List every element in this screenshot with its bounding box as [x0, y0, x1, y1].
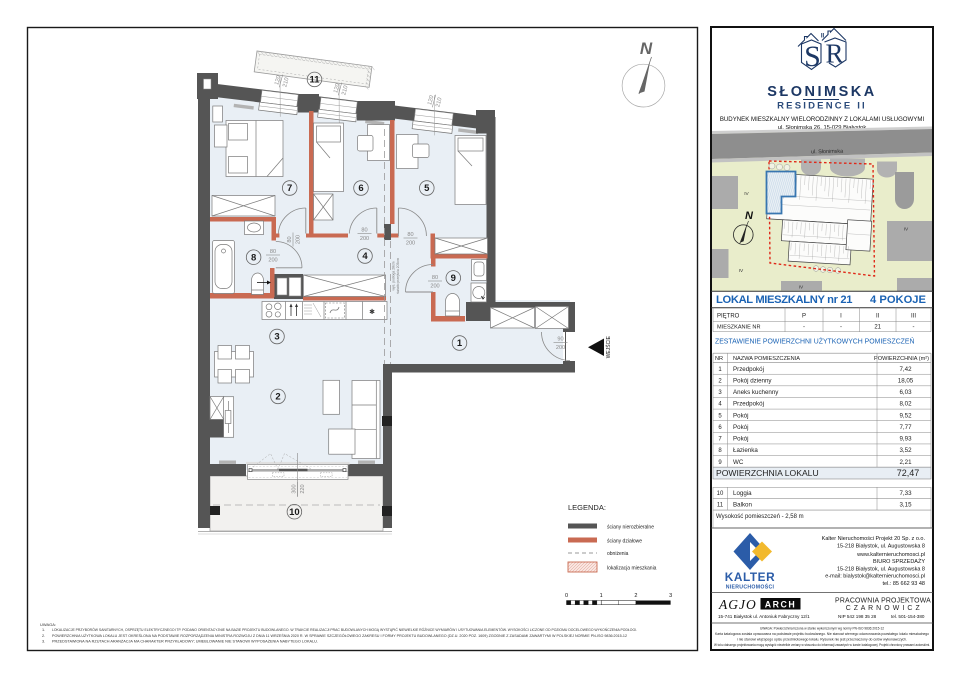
svg-text:18,05: 18,05 [898, 377, 914, 384]
svg-text:3: 3 [274, 332, 279, 343]
svg-text:-: - [913, 324, 915, 330]
svg-text:Loggia: Loggia [733, 490, 752, 497]
svg-text:SŁONIMSKA: SŁONIMSKA [767, 84, 877, 100]
svg-text:RESIDENCE II: RESIDENCE II [777, 101, 867, 112]
svg-text:3,52: 3,52 [899, 447, 912, 454]
svg-text:6: 6 [358, 183, 363, 194]
svg-text:1: 1 [457, 338, 463, 349]
svg-text:220: 220 [300, 484, 306, 493]
svg-text:ZESTAWIENIE POWIERZCHNI UŻYTKO: ZESTAWIENIE POWIERZCHNI UŻYTKOWYCH POMIE… [715, 337, 914, 346]
svg-text:Przedpokój: Przedpokój [733, 366, 764, 373]
svg-text:BIURO SPRZEDAŻY: BIURO SPRZEDAŻY [873, 558, 925, 565]
svg-text:IV: IV [739, 268, 744, 274]
svg-text:-: - [840, 324, 842, 330]
svg-text:9: 9 [451, 273, 456, 284]
svg-text:15-218 Białystok, ul. Augustow: 15-218 Białystok, ul. Augustowska 8 [837, 543, 925, 549]
svg-text:II: II [876, 314, 880, 320]
svg-text:UWAGA:: UWAGA: [40, 622, 56, 627]
svg-text:ściany działowe: ściany działowe [607, 539, 642, 545]
svg-text:W toku dalszego projektowania: W toku dalszego projektowania mogą wystą… [714, 643, 930, 647]
svg-text:80: 80 [287, 236, 293, 242]
svg-text:Pokój dzienny: Pokój dzienny [733, 377, 772, 384]
svg-text:3.: 3. [42, 640, 45, 644]
svg-text:i nie stanowi wiążącego opisu: i nie stanowi wiążącego opisu przedmioto… [737, 637, 907, 641]
svg-text:2: 2 [275, 392, 280, 403]
svg-text:Kalter Nieruchomości Projekt 2: Kalter Nieruchomości Projekt 20 Sp. z o.… [822, 536, 926, 542]
svg-text:LOKALIZACJE PRZYBORÓW SANITARN: LOKALIZACJE PRZYBORÓW SANITARNYCH, OSPRZ… [52, 627, 637, 632]
svg-text:wys. podłoga 28cm: wys. podłoga 28cm [392, 261, 396, 290]
svg-text:II: II [821, 34, 825, 40]
svg-text:LOKAL MIESZKALNY nr 21: LOKAL MIESZKALNY nr 21 [716, 294, 852, 306]
svg-text:-: - [803, 324, 805, 330]
svg-text:S: S [804, 40, 821, 73]
svg-text:Przedpokój: Przedpokój [733, 401, 764, 408]
svg-text:POWIERZCHNIA UŻYTKOWA LOKALU J: POWIERZCHNIA UŻYTKOWA LOKALU JEST OKREŚL… [52, 633, 627, 638]
svg-text:3,15: 3,15 [899, 502, 912, 509]
svg-text:1: 1 [600, 593, 603, 599]
svg-text:www.kalternieruchomosci.pl: www.kalternieruchomosci.pl [856, 552, 925, 558]
svg-text:✱: ✱ [369, 308, 375, 316]
svg-text:Pokój: Pokój [733, 424, 748, 431]
svg-text:10: 10 [289, 507, 300, 518]
svg-text:7,77: 7,77 [899, 424, 912, 431]
svg-text:80: 80 [407, 232, 413, 238]
svg-text:72,47: 72,47 [897, 468, 920, 478]
svg-text:PRZEDSTAWIONA NA RZUTACH ARANŻ: PRZEDSTAWIONA NA RZUTACH ARANŻACJA MA CH… [52, 639, 318, 644]
svg-text:III: III [911, 314, 916, 320]
svg-text:MIESZKANIE NR: MIESZKANIE NR [717, 324, 761, 330]
svg-text:ściany nierozbieralne: ściany nierozbieralne [607, 525, 654, 531]
svg-text:NIERUCHOMOŚCI: NIERUCHOMOŚCI [726, 584, 775, 591]
svg-text:tel.: 85 662 93 48: tel.: 85 662 93 48 [882, 581, 925, 587]
svg-text:10: 10 [717, 491, 724, 497]
svg-text:Pokój: Pokój [733, 412, 748, 419]
svg-text:11: 11 [309, 75, 320, 86]
svg-text:9,93: 9,93 [899, 436, 912, 443]
svg-text:5: 5 [424, 183, 430, 194]
svg-text:80: 80 [270, 249, 276, 255]
svg-text:200: 200 [296, 235, 302, 244]
svg-text:8: 8 [251, 252, 256, 263]
svg-text:WC: WC [733, 459, 744, 466]
svg-text:3: 3 [669, 593, 672, 599]
svg-text:80: 80 [432, 275, 438, 281]
svg-text:tel. 501-154-380: tel. 501-154-380 [891, 614, 925, 619]
svg-text:Pokój: Pokój [733, 436, 748, 443]
svg-text:światło przejścia 205cm: światło przejścia 205cm [396, 258, 400, 294]
svg-text:2.: 2. [42, 634, 45, 638]
svg-text:200: 200 [406, 241, 415, 247]
svg-text:obniżenia: obniżenia [607, 551, 629, 557]
svg-text:IV: IV [904, 227, 909, 233]
svg-text:11: 11 [717, 503, 724, 509]
svg-text:Balkon: Balkon [733, 502, 752, 509]
svg-text:IV: IV [744, 191, 749, 197]
svg-text:R: R [825, 39, 843, 69]
svg-text:C Z A R N O W I C Z: C Z A R N O W I C Z [846, 605, 921, 612]
svg-text:Aneks kuchenny: Aneks kuchenny [733, 389, 779, 396]
svg-text:ul. Słonimska: ul. Słonimska [811, 149, 843, 156]
svg-text:Karta katalogowa została oprac: Karta katalogowa została opracowana na p… [715, 632, 929, 636]
svg-text:UWAGA: Powierzchnia liczona: UWAGA: Powierzchnia liczona w stanie wyk… [760, 626, 884, 630]
svg-text:lokalizacja mieszkania: lokalizacja mieszkania [607, 566, 657, 572]
svg-text:Łazienka: Łazienka [733, 447, 758, 454]
svg-text:Wysokość pomieszczeń - 2,58 m: Wysokość pomieszczeń - 2,58 m [716, 514, 804, 520]
svg-text:200: 200 [360, 236, 369, 242]
svg-text:90: 90 [557, 337, 563, 343]
svg-text:POWIERZCHNIA LOKALU: POWIERZCHNIA LOKALU [716, 468, 819, 478]
svg-text:IV: IV [799, 285, 804, 291]
svg-text:7,42: 7,42 [899, 366, 912, 373]
svg-text:6,03: 6,03 [899, 389, 912, 396]
svg-text:N: N [745, 210, 754, 222]
svg-text:1.: 1. [42, 628, 45, 632]
svg-text:e-mail: bialystok@kalternieruc: e-mail: bialystok@kalternieruchomosci.pl [825, 574, 925, 580]
svg-text:0: 0 [565, 593, 568, 599]
svg-text:7: 7 [287, 183, 292, 194]
svg-text:LEGENDA:: LEGENDA: [568, 503, 606, 512]
svg-text:200: 200 [556, 345, 565, 351]
svg-text:POWIERZCHNIA (m²): POWIERZCHNIA (m²) [874, 356, 929, 362]
svg-text:80: 80 [361, 228, 367, 234]
svg-text:PIĘTRO: PIĘTRO [717, 314, 740, 320]
svg-text:NR: NR [715, 356, 723, 362]
svg-text:KALTER: KALTER [725, 570, 776, 584]
svg-text:9,52: 9,52 [899, 412, 912, 419]
svg-text:AGJO: AGJO [718, 597, 757, 612]
svg-text:300: 300 [292, 484, 298, 493]
svg-text:4: 4 [362, 251, 368, 262]
svg-text:8,02: 8,02 [899, 401, 912, 408]
svg-text:WEJŚCIE: WEJŚCIE [604, 335, 612, 358]
svg-text:N: N [640, 39, 653, 58]
svg-text:7,33: 7,33 [899, 490, 912, 497]
svg-text:BUDYNEK MIESZKALNY WIELORODZIN: BUDYNEK MIESZKALNY WIELORODZINNY Z LOKAL… [720, 116, 925, 123]
svg-text:200: 200 [430, 284, 439, 290]
svg-text:4 POKOJE: 4 POKOJE [870, 294, 926, 306]
svg-text:15-218 Białystok, ul. Augustow: 15-218 Białystok, ul. Augustowska 8 [837, 566, 925, 572]
svg-text:NIP 542 198 35 28: NIP 542 198 35 28 [838, 614, 877, 619]
svg-text:PRACOWNIA PROJEKTOWA: PRACOWNIA PROJEKTOWA [835, 598, 931, 605]
svg-text:P: P [802, 314, 806, 320]
svg-text:200: 200 [268, 258, 277, 264]
svg-text:15-741 Białystok ul. Antoniu: 15-741 Białystok ul. Antoniuk Fabryczny … [718, 614, 810, 619]
svg-text:2,21: 2,21 [899, 459, 912, 466]
svg-text:21: 21 [874, 324, 881, 330]
svg-text:2: 2 [634, 593, 637, 599]
svg-text:NAZWA POMIESZCZENIA: NAZWA POMIESZCZENIA [733, 356, 800, 362]
svg-text:ARCH: ARCH [765, 599, 796, 609]
